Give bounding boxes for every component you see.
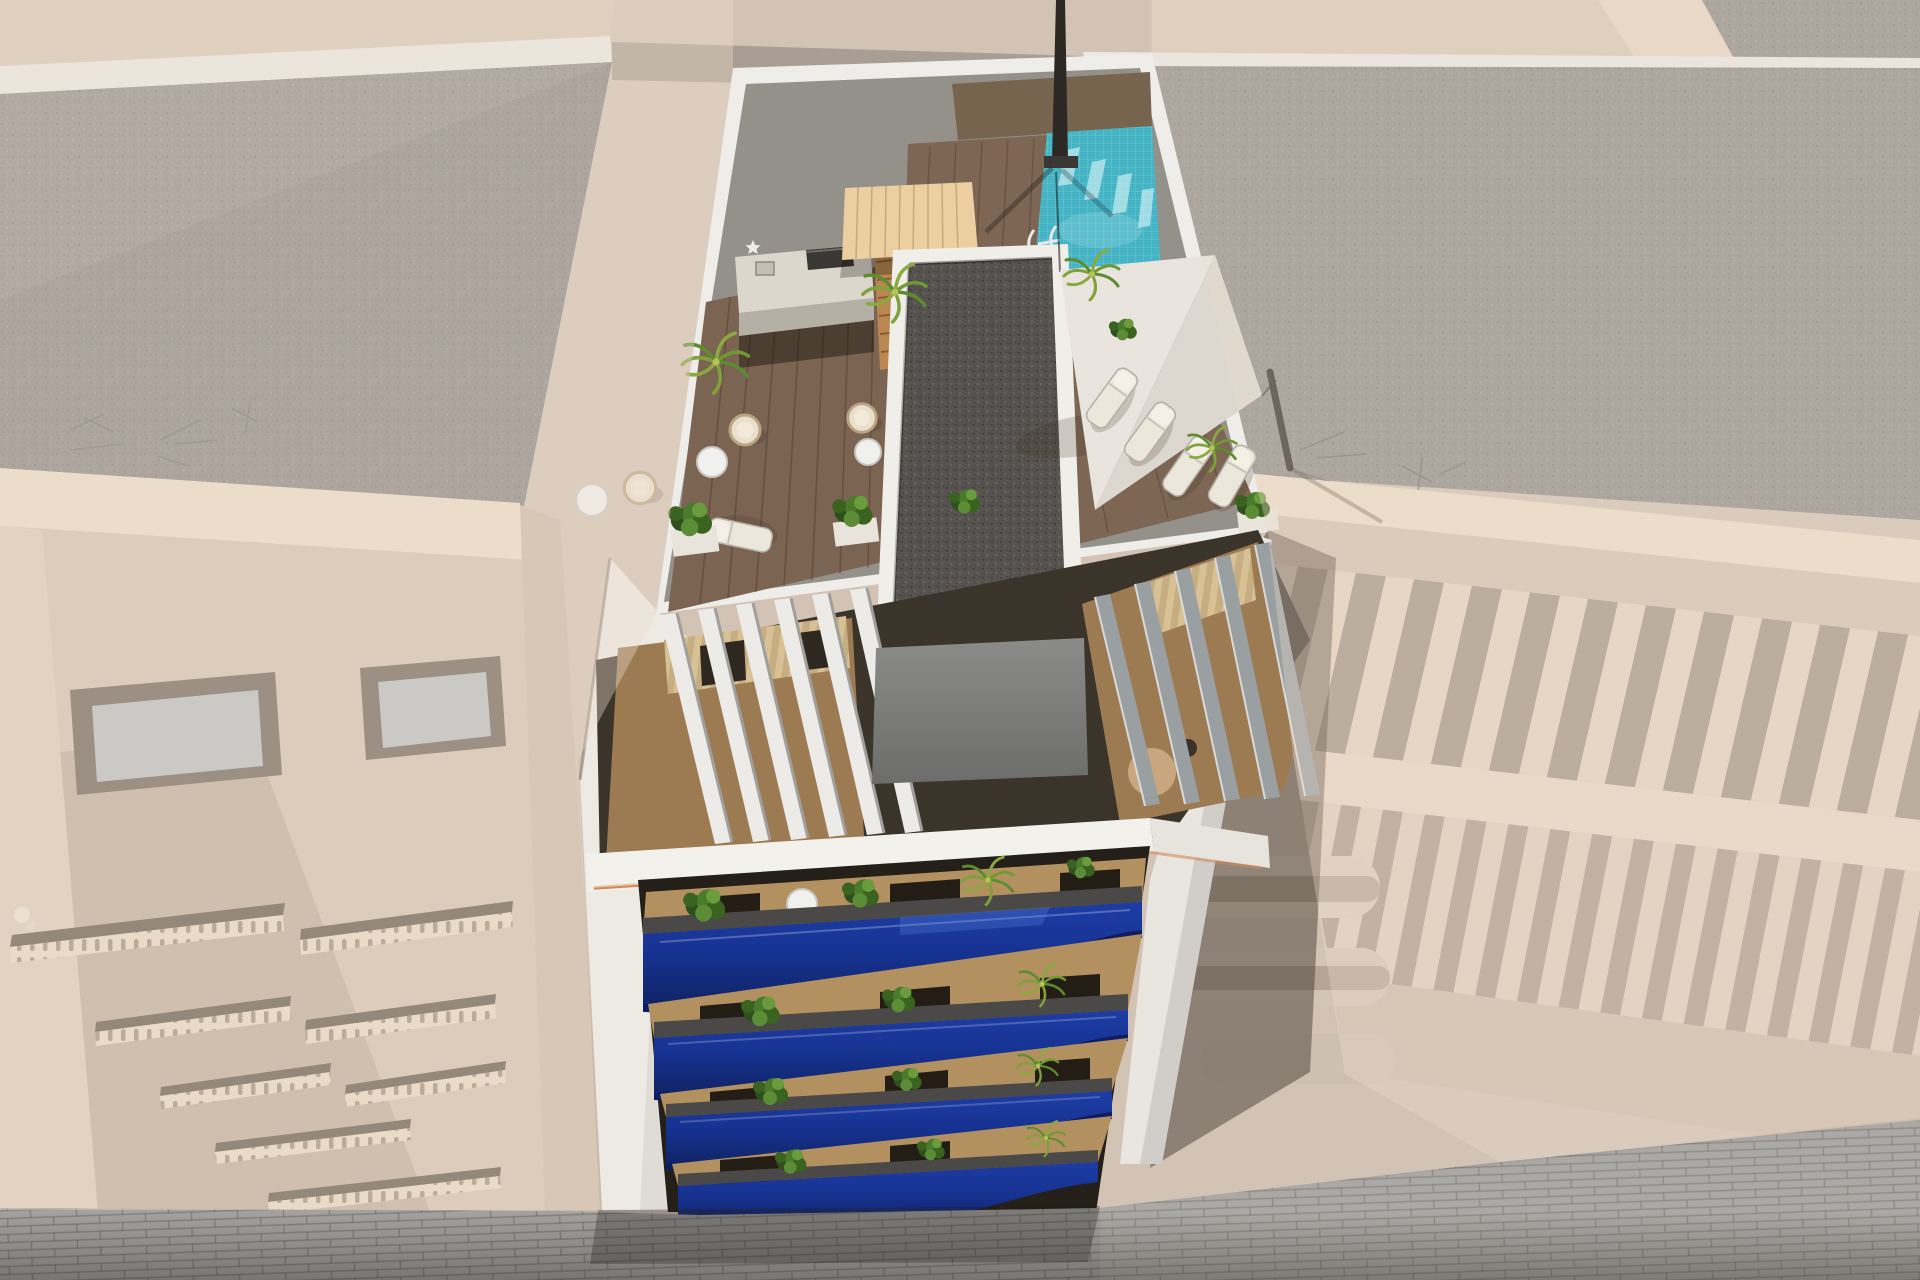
aerial-render (0, 0, 1920, 1280)
sink (756, 262, 774, 275)
balcony-stack (638, 846, 1150, 1224)
render-canvas (0, 0, 1920, 1280)
core-south-face (872, 638, 1088, 784)
side-table (697, 447, 727, 477)
